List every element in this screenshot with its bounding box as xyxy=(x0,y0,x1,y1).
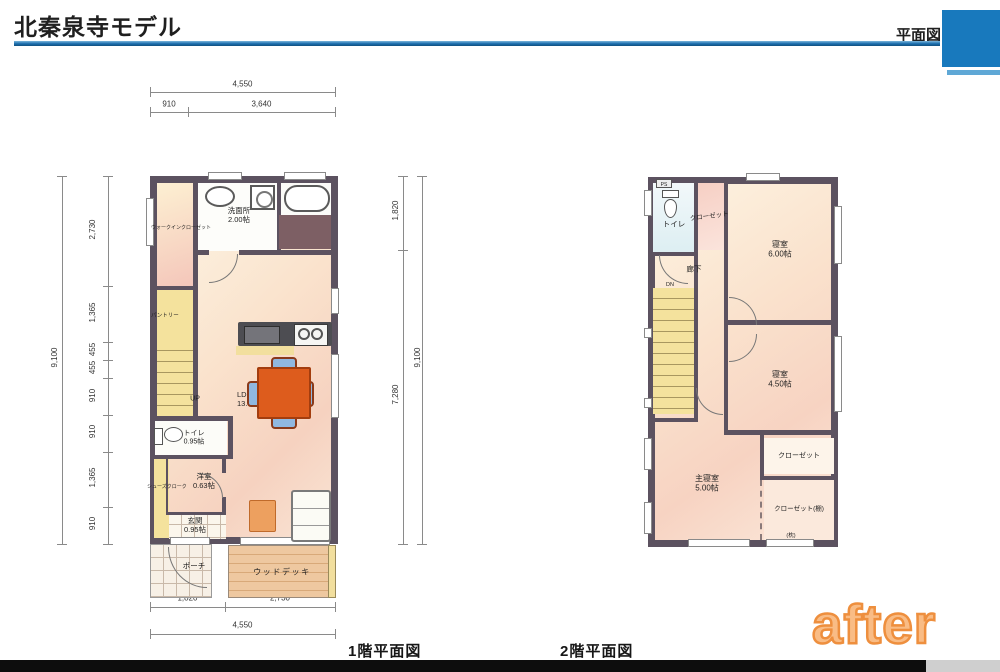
sofa xyxy=(291,490,331,542)
dim-f1-left-total: 9,100 xyxy=(51,340,60,375)
label-entrance: 玄関 xyxy=(175,517,216,526)
label-pantry: パントリー xyxy=(151,313,175,320)
corner-blue-square xyxy=(942,10,1000,67)
window xyxy=(834,206,842,264)
header-rule xyxy=(14,41,940,46)
after-watermark: after xyxy=(812,592,936,656)
counter-edge xyxy=(236,346,294,355)
room-walk-in-closet xyxy=(157,183,195,286)
label-washroom: 洗面所 xyxy=(210,207,269,216)
footer-black-bar xyxy=(0,660,926,672)
window xyxy=(644,438,652,470)
stairs-f1 xyxy=(157,340,195,416)
bath-floor xyxy=(279,215,331,249)
dim-f1-left-seg: 1,365 xyxy=(89,460,98,495)
dim-f1-bottom-total: 4,550 xyxy=(169,621,317,630)
corner-blue-strip xyxy=(947,70,1000,75)
dim-f1-left-seg: 910 xyxy=(89,506,98,541)
footer-gray-bar xyxy=(926,660,1000,672)
dim-f1-left-seg: 910 xyxy=(89,414,98,449)
window xyxy=(644,502,652,534)
window xyxy=(284,172,326,180)
floor2-caption: 2階平面図 xyxy=(560,640,633,661)
entrance-door xyxy=(170,537,210,545)
label-closet3: クローゼット(棚) xyxy=(774,505,825,513)
dim-line xyxy=(150,92,335,93)
deck-edge xyxy=(328,545,336,598)
coffee-table xyxy=(249,500,276,532)
dim-f1-right-7280: 7,280 xyxy=(392,377,401,412)
label-hall: 廊下 xyxy=(681,266,708,275)
dining-table xyxy=(257,367,311,419)
kitchen-counter xyxy=(238,322,332,346)
dim-f1-top-3640: 3,640 xyxy=(203,100,321,109)
label-western-room-size: 0.63帖 xyxy=(188,482,221,491)
dim-f1-right-1820: 1,820 xyxy=(392,193,401,228)
label-entrance-size: 0.95帖 xyxy=(175,526,216,535)
window xyxy=(688,539,750,547)
floor1-caption: 1階平面図 xyxy=(348,640,421,661)
page-title: 北秦泉寺モデル xyxy=(14,8,182,42)
window xyxy=(146,198,154,246)
label-bedroom1-size: 6.00帖 xyxy=(738,250,823,260)
label-bedroom2-size: 4.50帖 xyxy=(738,380,823,390)
label-pillow-shelf: (枕) xyxy=(783,533,800,540)
label-ps: PS xyxy=(660,182,668,188)
label-washroom-size: 2.00帖 xyxy=(210,216,269,225)
label-bedroom1: 寝室 xyxy=(738,240,823,250)
window xyxy=(208,172,242,180)
label-toilet-f1-size: 0.95帖 xyxy=(176,438,212,446)
window xyxy=(644,328,652,338)
dim-f1-top-total: 4,550 xyxy=(169,80,317,89)
label-western-room: 洋室 xyxy=(188,473,221,482)
label-toilet-f2: トイレ xyxy=(658,221,691,230)
dim-f1-right-total: 9,100 xyxy=(414,340,423,375)
label-closet2: クローゼット xyxy=(773,452,825,460)
toilet-tank-f1 xyxy=(154,428,163,445)
label-wood-deck: ウッドデッキ xyxy=(248,568,315,578)
dashed-partition xyxy=(760,480,762,540)
dim-f1-left-seg: 1,365 xyxy=(89,295,98,330)
window xyxy=(331,288,339,314)
label-master-bedroom: 主寝室 xyxy=(665,474,750,484)
window xyxy=(766,539,814,547)
floor-plan-page: 北秦泉寺モデル 平面図 4,550 910 3,640 9,100 2,730 … xyxy=(0,0,1000,672)
window xyxy=(834,336,842,412)
dim-f1-top-910: 910 xyxy=(154,100,184,109)
dim-f1-left-seg: 910 xyxy=(89,378,98,413)
label-toilet-f1: トイレ xyxy=(176,430,212,438)
label-bedroom2: 寝室 xyxy=(738,370,823,380)
sink-fixture xyxy=(205,186,235,207)
window xyxy=(644,190,652,216)
toilet-tank-f2 xyxy=(662,190,679,198)
window xyxy=(331,354,339,418)
bathtub xyxy=(284,185,330,212)
label-porch: ポーチ xyxy=(178,563,211,572)
label-master-bedroom-size: 5.00帖 xyxy=(665,484,750,494)
window xyxy=(644,398,652,408)
dim-f1-left-seg: 2,730 xyxy=(89,212,98,247)
window xyxy=(746,173,780,181)
stairs-f2 xyxy=(653,288,694,414)
label-shoe-closet: シューズクローク xyxy=(147,484,170,490)
label-dn: DN xyxy=(665,282,676,289)
label-wic: ウォークインクローゼット xyxy=(151,225,174,231)
label-up: UP xyxy=(187,395,204,403)
